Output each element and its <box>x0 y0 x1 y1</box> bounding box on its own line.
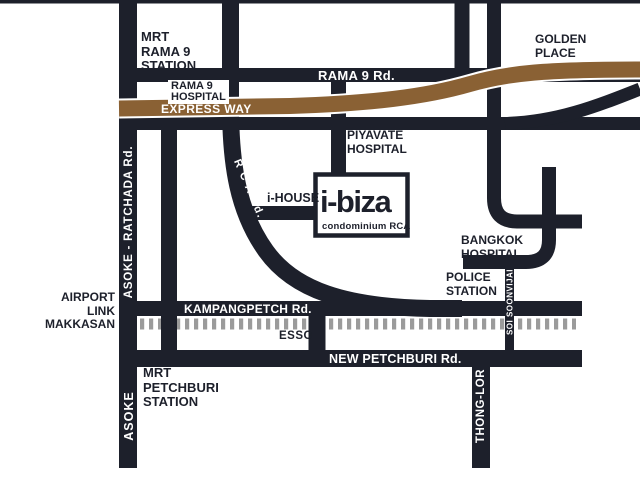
label-thong-lor-road: THONG-LOR <box>475 369 487 443</box>
label-esso: ESSO <box>279 330 313 342</box>
label-asoke-ratchada-road: ASOKE - RATCHADA Rd. <box>123 146 135 299</box>
label-rama9-hospital: RAMA 9 HOSPITAL <box>168 80 229 104</box>
label-ibiza-name: i-biza <box>320 185 390 219</box>
location-map: MRT RAMA 9 STATION GOLDEN PLACE RAMA 9 H… <box>0 0 640 480</box>
label-airport-link-makkasan: AIRPORT LINK MAKKASAN <box>38 291 115 332</box>
map-border <box>0 0 640 4</box>
label-golden-place: GOLDEN PLACE <box>535 33 586 60</box>
label-ibiza-subtitle: condominium RCA <box>322 221 411 232</box>
label-asoke-road: ASOKE <box>122 391 136 440</box>
label-piyavate-hospital: PIYAVATE HOSPITAL <box>347 129 407 156</box>
label-express-way: EXPRESS WAY <box>161 102 252 116</box>
top-edge-strip <box>0 0 640 4</box>
label-new-petchburi-road: NEW PETCHBURI Rd. <box>329 352 462 366</box>
label-i-house: i-HOUSE <box>267 191 319 205</box>
label-rama9-road: RAMA 9 Rd. <box>318 68 395 83</box>
label-mrt-petchburi-station: MRT PETCHBURI STATION <box>143 366 219 410</box>
label-soi-soonvijai: SOI SOONVIJAI <box>506 269 515 335</box>
label-mrt-rama9-station: MRT RAMA 9 STATION <box>141 30 196 74</box>
label-bangkok-hospital: BANGKOK HOSPITAL <box>461 234 523 261</box>
label-kampangpetch-road: KAMPANGPETCH Rd. <box>184 302 312 316</box>
label-police-station: POLICE STATION <box>446 271 497 298</box>
